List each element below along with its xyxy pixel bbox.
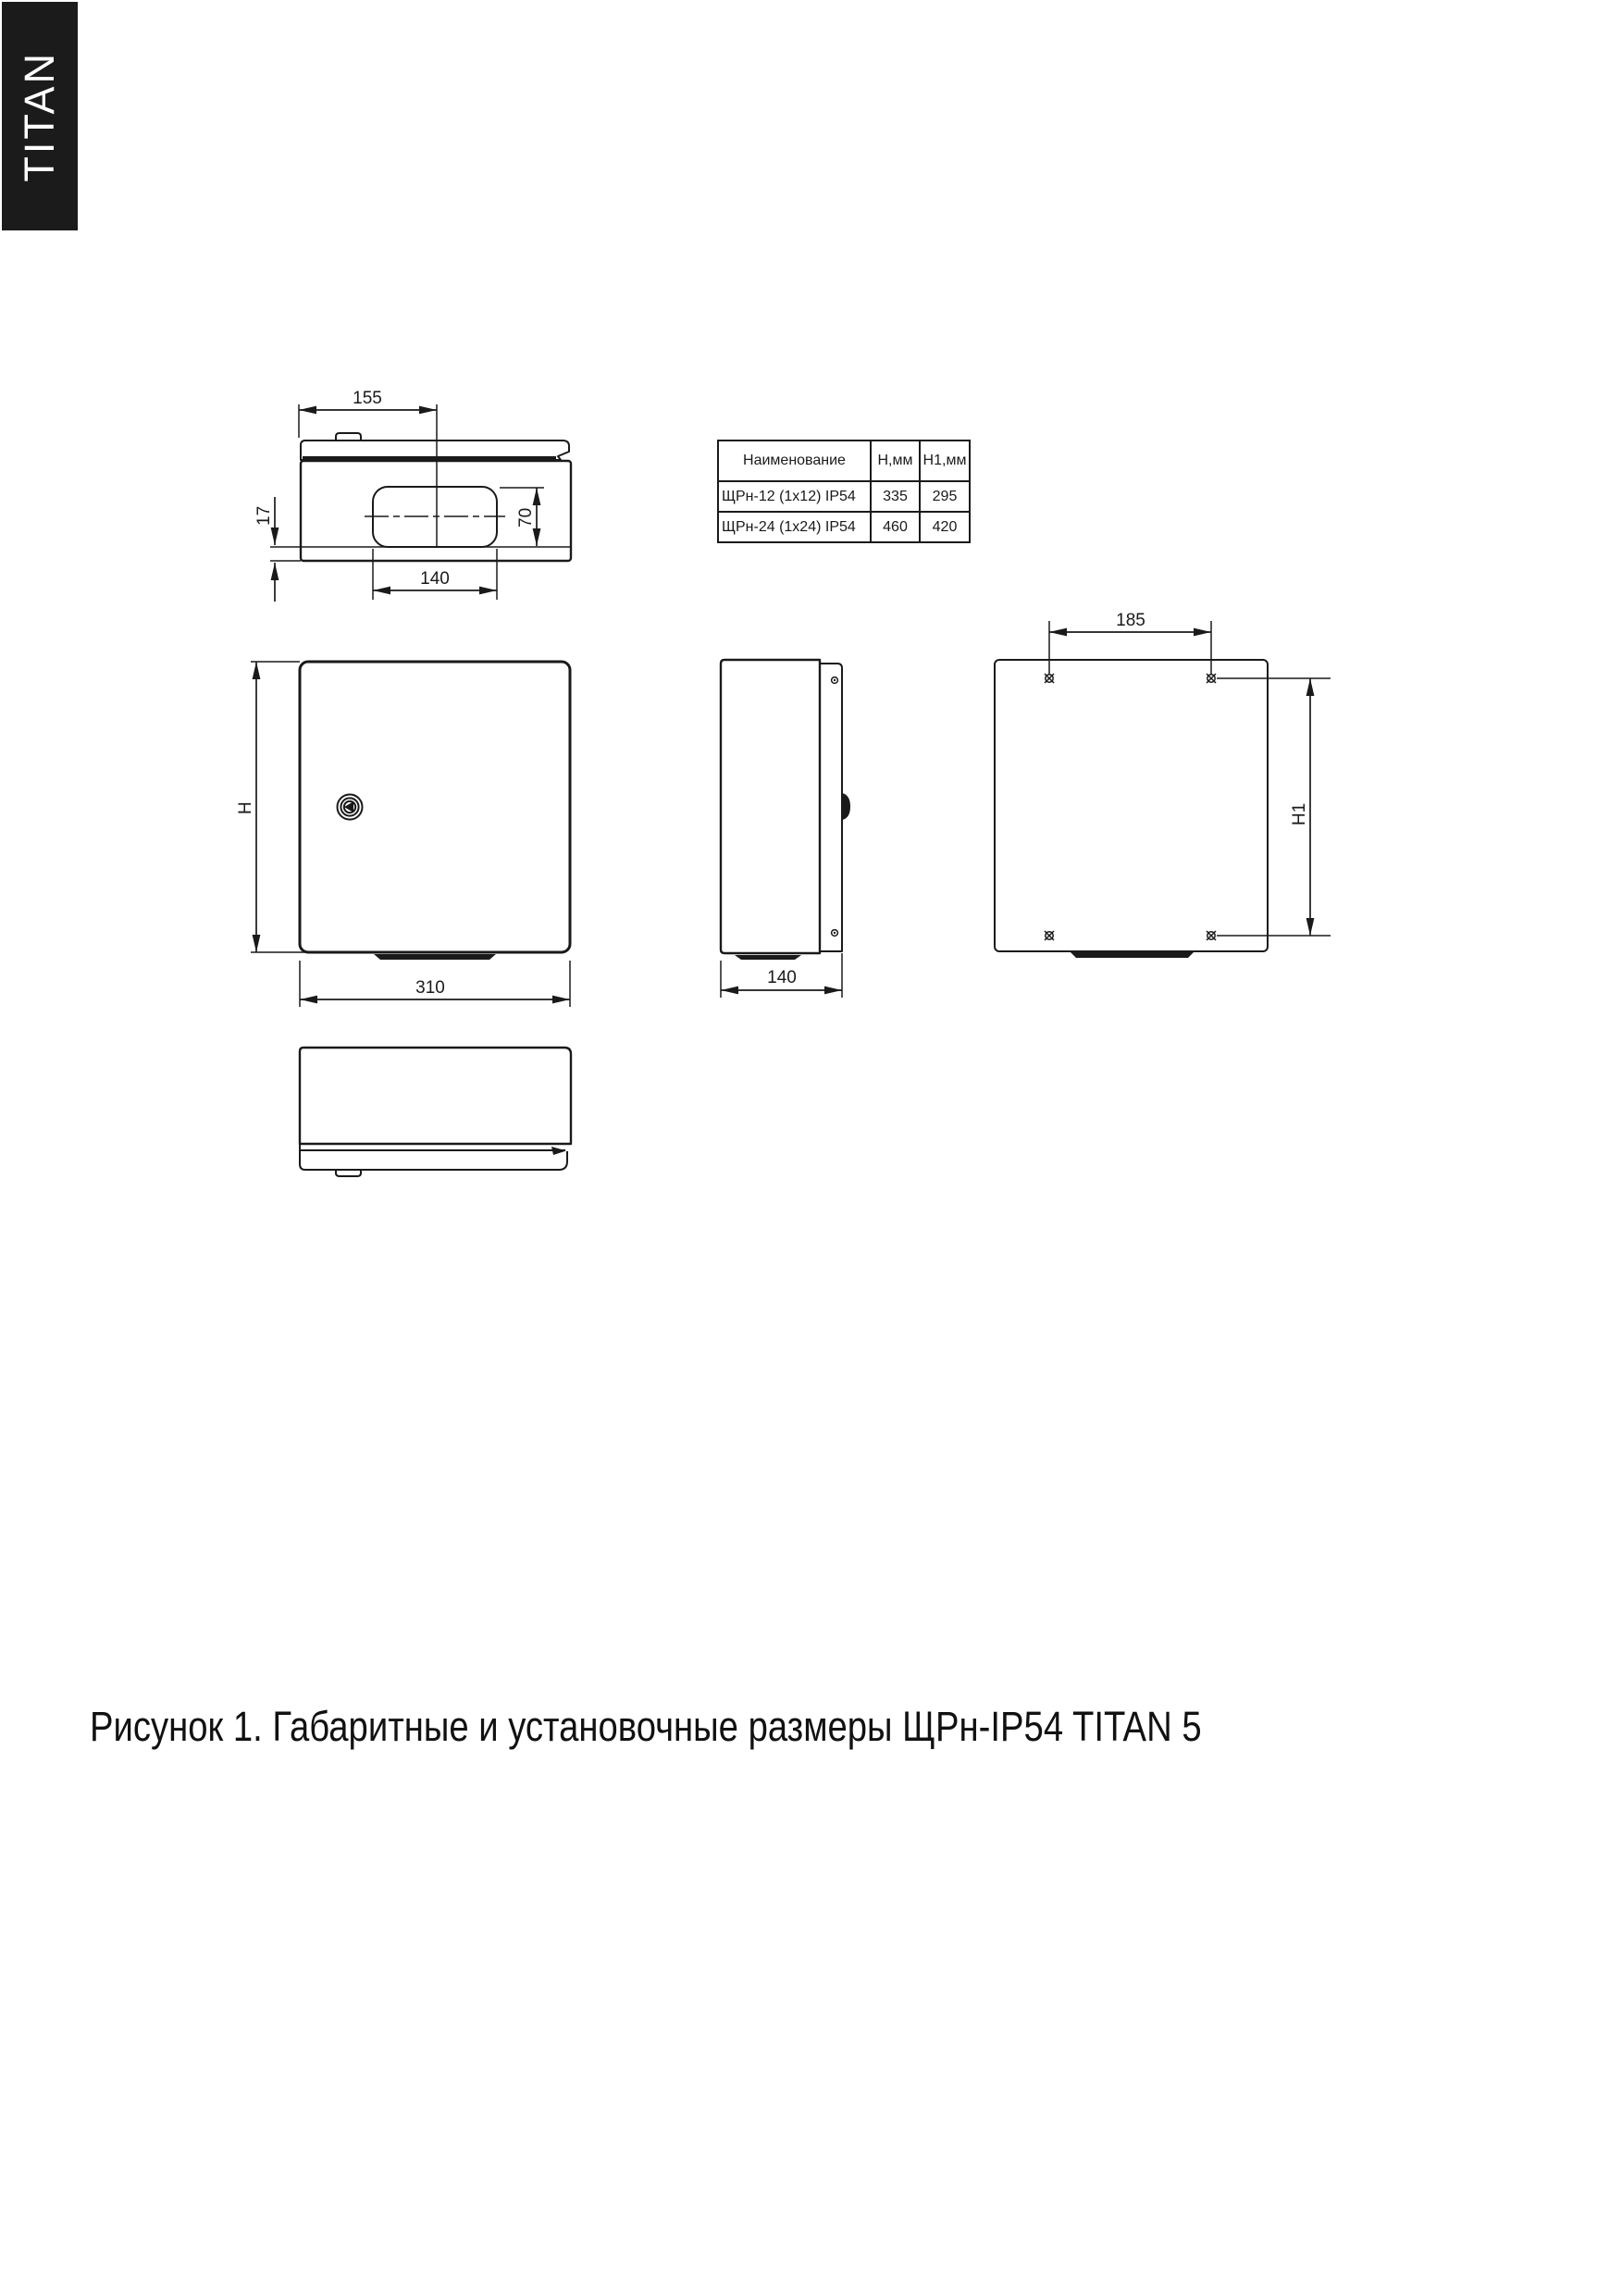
dim-label-140-side: 140 [767, 968, 797, 987]
front-view-bottom-lip [374, 954, 496, 960]
flange-screw-bottom [832, 930, 838, 937]
dim-label-185: 185 [1116, 611, 1145, 630]
table-row: ЩРн-12 (1x12) IP54 335 295 [718, 481, 970, 512]
side-view-door-flange [820, 664, 842, 951]
side-view: 140 [721, 660, 850, 998]
rear-view-body [995, 660, 1268, 951]
door-lock [338, 795, 363, 820]
side-view-body [721, 660, 820, 953]
dim-label-70: 70 [516, 508, 536, 527]
mounting-hole-top-right [1207, 674, 1216, 683]
cell-h-2: 460 [871, 512, 920, 542]
top-view-gland-bump [336, 433, 361, 440]
side-view-handle [842, 793, 850, 820]
table-row: ЩРн-24 (1x24) IP54 460 420 [718, 512, 970, 542]
bottom-view-body [300, 1048, 571, 1144]
dim-label-H1: H1 [1290, 803, 1309, 825]
top-view: 155 17 70 140 [254, 389, 571, 602]
col-header-h: Н,мм [871, 441, 920, 481]
cell-h1-1: 295 [920, 481, 970, 512]
dim-label-140-top: 140 [420, 569, 450, 589]
cell-model-1: ЩРн-12 (1x12) IP54 [718, 481, 871, 512]
front-view: H 310 [236, 662, 570, 1007]
bottom-view-notch [551, 1147, 566, 1155]
dim-label-17: 17 [254, 506, 274, 526]
cell-h-1: 335 [871, 481, 920, 512]
side-view-bottom-lip [735, 955, 801, 960]
bottom-view [300, 1048, 571, 1176]
dim-label-310: 310 [415, 978, 445, 998]
spec-table-header-row: Наименование Н,мм Н1,мм [718, 441, 970, 481]
rear-view-bottom-lip [1070, 951, 1195, 958]
figure-caption: Рисунок 1. Габаритные и установочные раз… [90, 1703, 1202, 1751]
col-header-h1: Н1,мм [920, 441, 970, 481]
datasheet-page: TITAN 155 [0, 0, 1622, 2296]
dimensional-drawing: 155 17 70 140 [0, 0, 1622, 1342]
cell-model-2: ЩРн-24 (1x24) IP54 [718, 512, 871, 542]
bottom-view-gland-bump [336, 1170, 361, 1176]
flange-screw-top [832, 677, 838, 684]
mounting-hole-top-left [1045, 674, 1054, 683]
mounting-hole-bottom-left [1045, 931, 1054, 940]
rear-view: 185 H1 [995, 611, 1331, 958]
bottom-view-canopy [300, 1144, 567, 1170]
col-header-name: Наименование [718, 441, 871, 481]
mounting-hole-bottom-right [1207, 931, 1216, 940]
dim-label-H: H [236, 801, 255, 814]
spec-table: Наименование Н,мм Н1,мм ЩРн-12 (1x12) IP… [717, 440, 971, 543]
cell-h1-2: 420 [920, 512, 970, 542]
dim-label-155: 155 [353, 389, 382, 408]
